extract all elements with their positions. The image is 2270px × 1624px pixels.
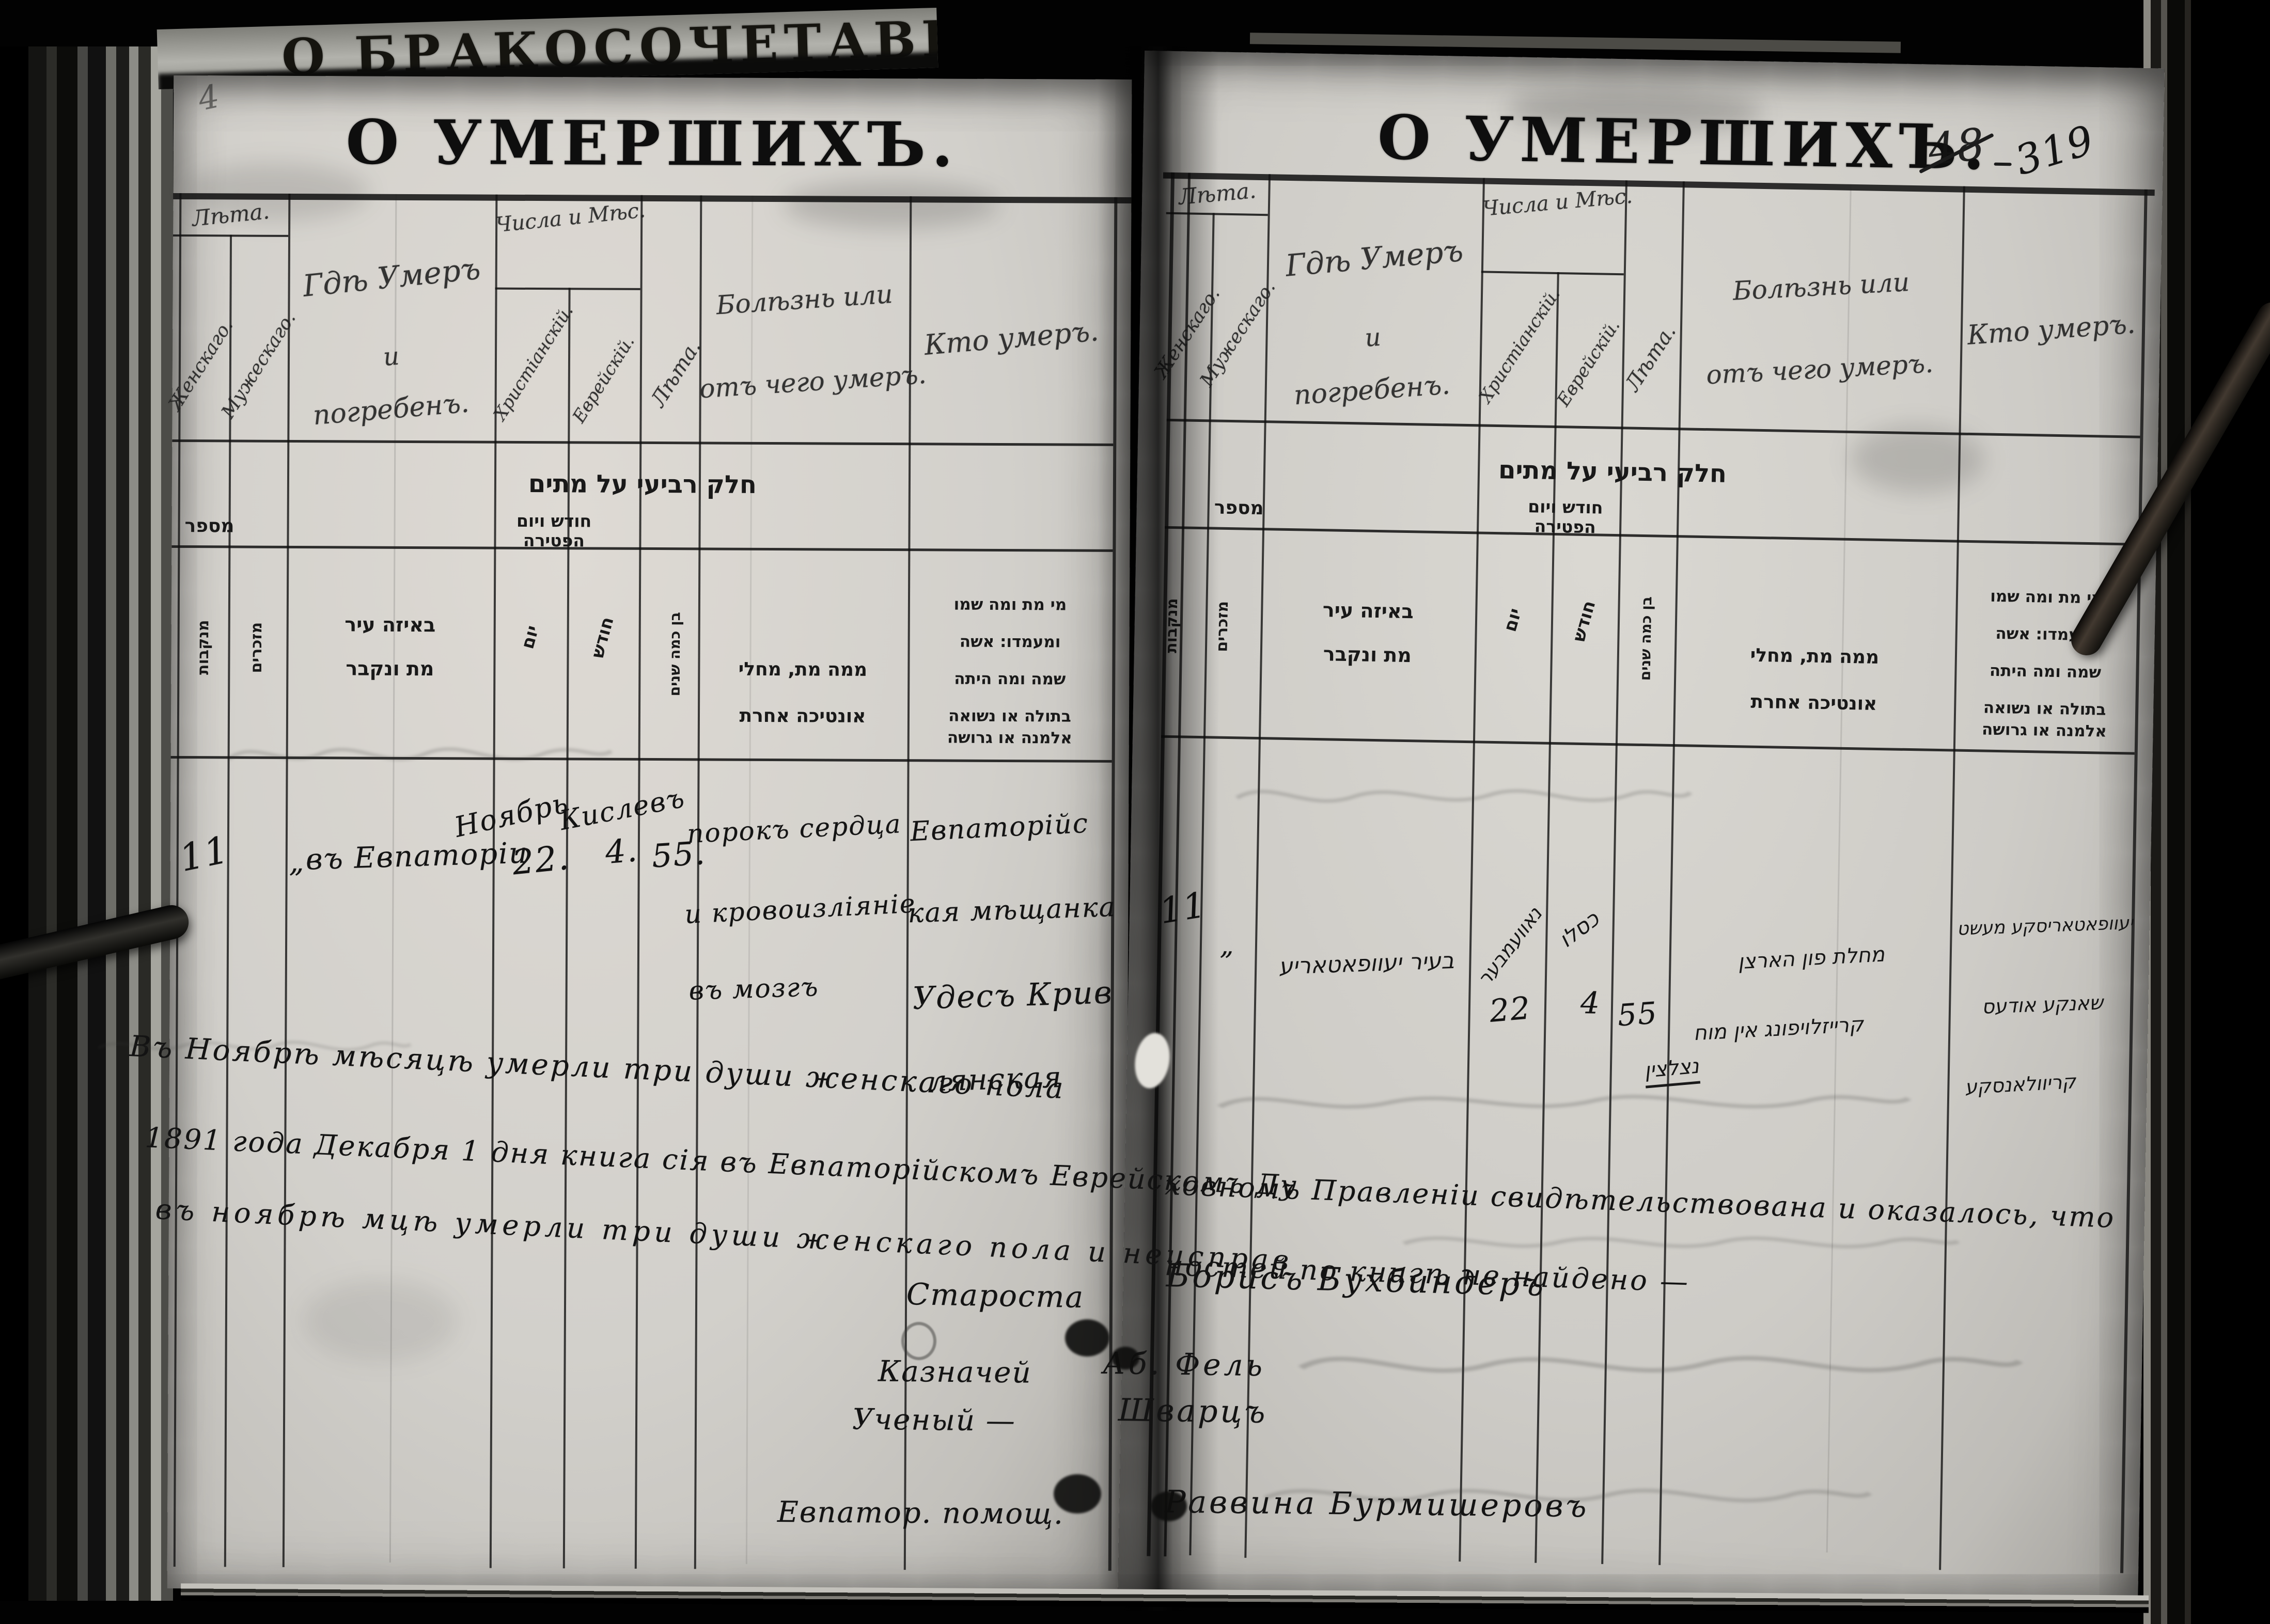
signature-scholar-name: Шварцъ [1118, 1392, 1268, 1430]
header-cause-1: Болѣзнь или [699, 278, 910, 321]
hebrew-males: מזכרים [247, 596, 266, 699]
entry-cause-2: и кровоизліяніе [684, 889, 916, 929]
hebrew-where-1: באיזה עיר [287, 613, 494, 637]
entry-month-jewish: כסלו [1554, 906, 1604, 952]
hebrew-date-group-1: חודש ויום [469, 510, 639, 531]
entry-number: 11 [176, 827, 233, 880]
entry-ditto: „ [1219, 930, 1235, 961]
entry-who-2: שאנקע אודעס [1954, 990, 2131, 1019]
bleed-through-ghost [1395, 1219, 1963, 1265]
header-where-2: и [1265, 316, 1481, 359]
ink-blot [1111, 1347, 1139, 1369]
entry-month-civil: נאוועמבער [1465, 892, 1555, 1001]
stamp-mark [901, 1322, 936, 1360]
hebrew-day: יום [513, 609, 547, 665]
entry-day-jewish: 4. [604, 831, 639, 871]
hebrew-cause-1: ממה מת, מחלי [698, 658, 907, 681]
left-page-edge-stack [0, 46, 173, 1601]
header-date-group: Числа и Мѣс. [495, 199, 641, 237]
hebrew-who-2: ומעמדו: אשה [908, 632, 1113, 652]
entry-who-1: יעוופאטאריסקע מעשט [1953, 912, 2137, 939]
signature-rabbi-label: Евпатор. помощ. [777, 1495, 1064, 1531]
hebrew-who-3: שמה ומה היתה [1954, 661, 2136, 683]
entry-cause-3: въ мозгъ [688, 972, 819, 1006]
hebrew-date-group-2: הפטירה [1498, 515, 1633, 538]
hebrew-females: מנקבות [194, 596, 213, 699]
bleed-through-ghost [93, 1025, 413, 1066]
entry-day-civil: 22 [1488, 990, 1532, 1030]
header-where-2: и [287, 334, 495, 380]
hebrew-where-1: באיזה עיר [1261, 597, 1476, 624]
header-who: Кто умеръ. [908, 313, 1115, 363]
hebrew-number: מספר [1214, 497, 1264, 519]
hebrew-month: חודש [586, 610, 619, 665]
hebrew-who-5: אלמנה או גרושה [907, 728, 1112, 748]
bleed-through-ghost [1255, 1469, 1875, 1521]
rule [635, 195, 643, 1569]
header-where-3: погребенъ. [287, 385, 496, 433]
rule [495, 288, 640, 290]
entry-cause-2: קרייזלויפונג אין מוח [1664, 1011, 1892, 1047]
page-number-old: 48 [1925, 118, 1989, 176]
page-number-dash [1994, 163, 2012, 166]
rule [1481, 271, 1624, 275]
hebrew-date-group-1: חודש ויום [1498, 496, 1633, 518]
hebrew-who-4: בתולה או נשואה [1954, 698, 2136, 720]
entry-who-3: Удесъ Крив [912, 974, 1114, 1017]
header-date-christian: Христіанскій. [1475, 291, 1560, 406]
entry-who-2: кая мѣщанка [907, 892, 1117, 929]
hebrew-where-2: מת ונקבר [286, 657, 493, 681]
rule [172, 439, 1113, 446]
signature-scholar-label: Ученый — [852, 1402, 1016, 1438]
entry-who-1: Евпаторійс [910, 808, 1089, 848]
rule [171, 545, 1113, 552]
hebrew-date-group-2: הפטירה [468, 530, 639, 550]
entry-who-3: קריוולאנסקע [1932, 1068, 2109, 1100]
header-date-group: Числа и Мѣс. [1482, 185, 1626, 221]
hebrew-month: חודש [1567, 593, 1601, 649]
signature-starosta-label: Староста [906, 1276, 1084, 1315]
entry-cause-1: מחלת פון הארצן [1679, 939, 1944, 977]
ink-blot [1054, 1474, 1101, 1513]
entry-ditto: „ [289, 845, 305, 879]
entry-where: въ Евпаторіи [305, 836, 529, 876]
hebrew-who-5: אלמנה או גרושה [1953, 720, 2135, 742]
header-cause-2: отъ чего умеръ. [698, 360, 910, 404]
hebrew-age: בן כמה שנים [666, 592, 683, 716]
entry-where: בעיר יעוופאטאריע [1260, 947, 1473, 981]
entry-day-christian: 22. [510, 838, 571, 883]
header-cause-1: Болѣзнь или [1680, 264, 1962, 309]
hebrew-cause-2: אונטיכה אחרת [698, 705, 907, 727]
header-cause-2: отъ чего умеръ. [1679, 347, 1960, 391]
header-where-1: Гдѣ Умеръ [287, 249, 496, 305]
header-where-1: Гдѣ Умеръ [1266, 231, 1482, 285]
hebrew-number: מספר [185, 515, 234, 537]
entry-cause-1: порокъ сердца [686, 809, 902, 849]
bleed-through-ghost [222, 731, 615, 777]
hebrew-cause-2: אונטיכה אחרת [1673, 690, 1954, 716]
rule [1165, 526, 2138, 546]
hebrew-who-3: שמה ומה היתה [907, 669, 1112, 689]
entry-day-jewish: 4 [1580, 985, 1601, 1021]
ink-blot [1151, 1491, 1187, 1521]
metrical-book-scan: О БРАКОСОЧЕТАВШ О УМЕРШИХЪ. 4 Лѣта. Женс… [0, 0, 2270, 1624]
signature-treasurer-label: Казначей [878, 1354, 1032, 1390]
bleed-through-ghost [1214, 1077, 1911, 1126]
entry-month-christian: Ноябрь [451, 786, 572, 844]
hebrew-cause-1: ממה מת, מחלי [1674, 643, 1955, 669]
hebrew-day: יום [1496, 592, 1530, 648]
rule [224, 234, 232, 1567]
hebrew-who-1: מי מת ומה שמו [908, 595, 1113, 614]
header-where-3: погребенъ. [1264, 367, 1480, 413]
hebrew-age: בן כמה שנים [1636, 576, 1655, 701]
header-who: Кто умеръ. [1960, 308, 2142, 352]
rule [283, 194, 291, 1567]
bleed-through-ghost [1291, 1335, 2025, 1392]
hebrew-who-4: בתולה או נשואה [907, 706, 1112, 726]
header-date-christian: Христіанскій. [490, 308, 573, 424]
rule [1167, 419, 2140, 438]
bleed-through-ghost [1229, 772, 1694, 818]
ink-blot [1065, 1319, 1109, 1357]
entry-month-jewish: Кислевъ [557, 782, 688, 837]
right-page-edge-stack [2143, 0, 2270, 1624]
entry-age: 55 [1617, 995, 1659, 1033]
right-page-under-edge [1250, 33, 1901, 53]
hebrew-section-title: חלק רביעי על מתים [172, 468, 1113, 501]
hebrew-where-2: מת ונקבר [1260, 641, 1475, 668]
